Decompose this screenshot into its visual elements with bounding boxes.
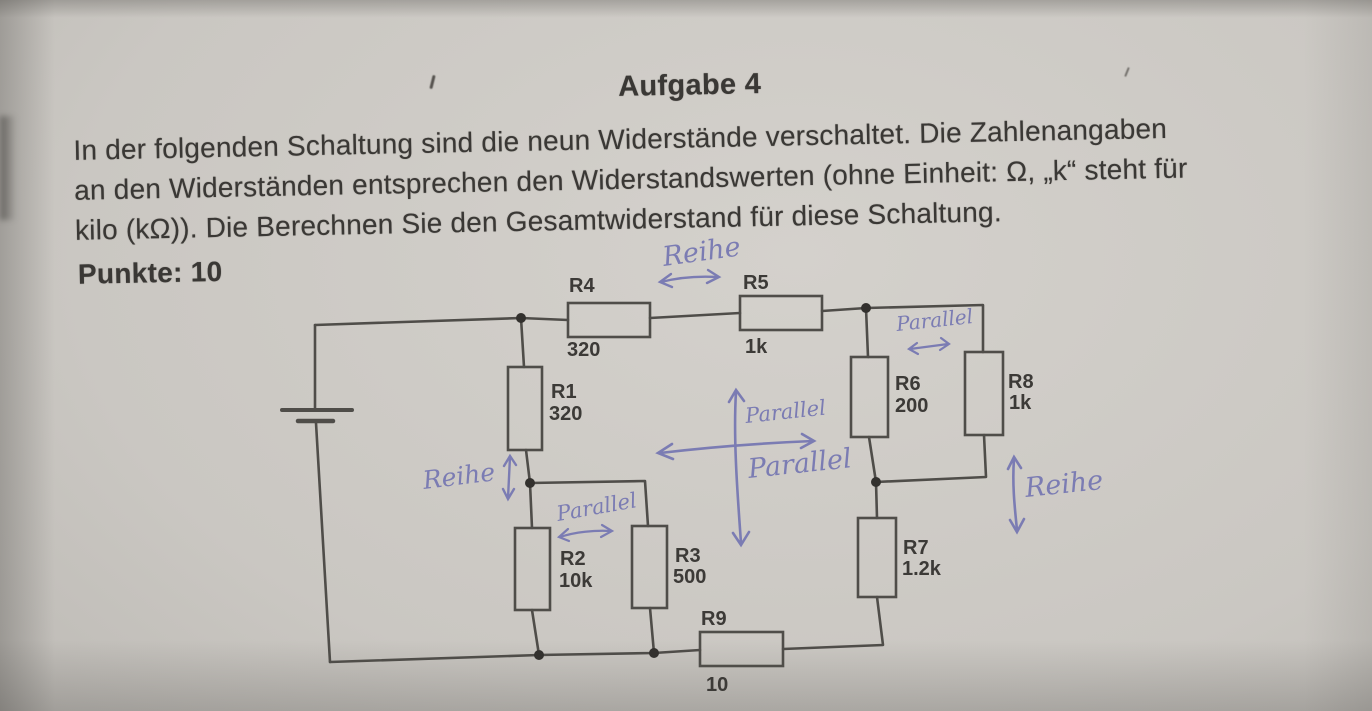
wire-node-to-r6-top [866, 308, 868, 357]
battery-symbol [282, 410, 352, 421]
resistor-body-r1 [508, 367, 542, 450]
annotation-reihe-right: Reihe [1022, 465, 1104, 504]
resistor-body-r7 [858, 518, 896, 597]
wire-r9-to-r7 [783, 597, 883, 649]
resistor-value-r2: 10k [559, 570, 593, 592]
junction-dot [516, 313, 526, 323]
resistor-body-r6 [851, 357, 888, 437]
arrow-horizontal-top [660, 270, 719, 287]
junction-dot [871, 477, 881, 487]
junction-dot [861, 303, 871, 313]
resistor-name-r9: R9 [701, 608, 727, 630]
resistor-name-r3: R3 [675, 545, 701, 567]
resistor-body-r4 [568, 303, 650, 337]
wire-r5-to-node [822, 308, 866, 311]
circuit-diagram: R1 320 R2 10k R3 500 R4 320 R5 1k R6 200… [0, 0, 1372, 711]
resistor-value-r1: 320 [549, 403, 582, 425]
annotation-parallel-center-up: Parallel [743, 396, 827, 428]
photographed-exercise-sheet: Aufgabe 4 In der folgenden Schaltung sin… [0, 0, 1372, 711]
resistor-value-r5: 1k [745, 336, 768, 358]
resistor-body-r3 [632, 526, 667, 608]
arrow-vertical-right [1008, 457, 1024, 532]
resistor-body-r8 [965, 352, 1003, 435]
wire-top-rail-left [315, 318, 568, 325]
wire-node-to-r2-top [530, 483, 532, 528]
resistor-body-r5 [740, 296, 822, 330]
resistor-name-r5: R5 [743, 272, 769, 294]
junction-dot [525, 478, 535, 488]
resistor-name-r2: R2 [560, 548, 586, 570]
resistor-value-r4: 320 [567, 339, 600, 361]
resistor-value-r8: 1k [1009, 392, 1032, 414]
wire-node-to-r1-top [521, 318, 524, 367]
junction-dot [534, 650, 544, 660]
annotation-parallel-top-right: Parallel [894, 304, 974, 336]
annotation-reihe-top: Reihe [660, 231, 743, 273]
arrow-horizontal-mid-left [559, 525, 612, 541]
resistor-body-r9 [700, 632, 783, 666]
resistor-value-r9: 10 [706, 674, 728, 696]
annotation-parallel-mid-left: Parallel [554, 488, 639, 526]
resistor-name-r4: R4 [569, 275, 595, 297]
wire-r3-bottom [650, 608, 654, 653]
resistor-body-r2 [515, 528, 550, 610]
resistor-name-r1: R1 [551, 381, 577, 403]
wire-node-to-r7-top [876, 482, 877, 518]
annotation-parallel-center: Parallel [745, 443, 853, 485]
wire-left-rail-bottom [316, 423, 330, 662]
arrow-vertical-left [503, 456, 516, 499]
resistor-labels: R1 320 R2 10k R3 500 R4 320 R5 1k R6 200… [549, 272, 1034, 696]
wire-r2-bottom [532, 610, 539, 655]
resistor-value-r6: 200 [895, 395, 928, 417]
wire-bottom-rail [330, 650, 700, 662]
wire-r4-to-r5 [650, 313, 740, 318]
resistor-name-r6: R6 [895, 373, 921, 395]
junction-dot [649, 648, 659, 658]
resistor-value-r7: 1.2k [902, 558, 942, 580]
resistor-value-r3: 500 [673, 566, 706, 588]
resistor-name-r8: R8 [1008, 371, 1034, 393]
arrow-horizontal-top-right [909, 338, 949, 354]
annotation-reihe-left: Reihe [420, 457, 497, 495]
resistor-name-r7: R7 [903, 537, 929, 559]
wire-r8-bottom [876, 435, 986, 482]
wire-r6-bottom [869, 437, 876, 482]
